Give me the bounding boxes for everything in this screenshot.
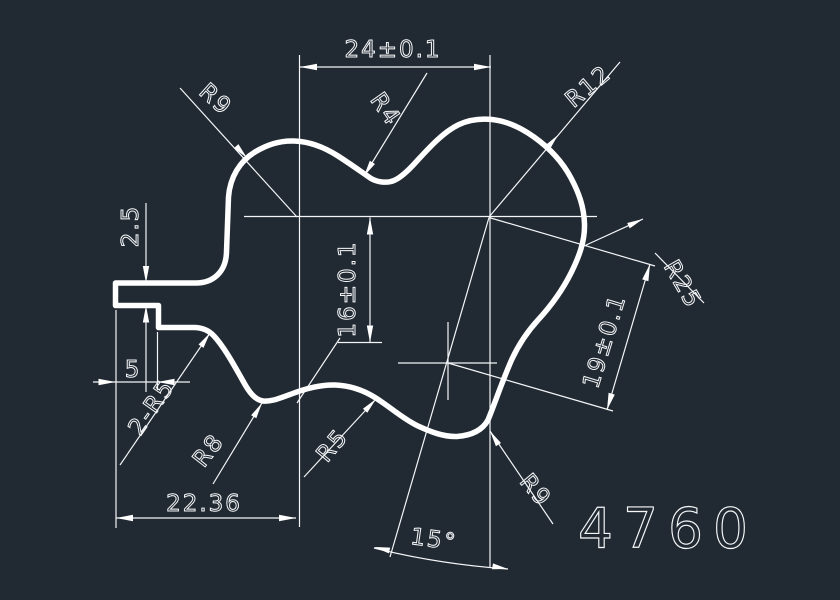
part-number-text: 4760 — [578, 496, 758, 560]
dim-mid-height-text: 16±0.1 — [335, 240, 361, 337]
cad-drawing-canvas: 24±0.1 2.5 5 22.36 16±0.1 — [0, 0, 840, 600]
dim-bottom-width-text: 22.36 — [166, 491, 242, 517]
dim-top-width-text: 24±0.1 — [344, 37, 441, 63]
dim-tab-depth-text: 5 — [125, 357, 142, 383]
dim-tab-thickness-text: 2.5 — [118, 205, 144, 248]
